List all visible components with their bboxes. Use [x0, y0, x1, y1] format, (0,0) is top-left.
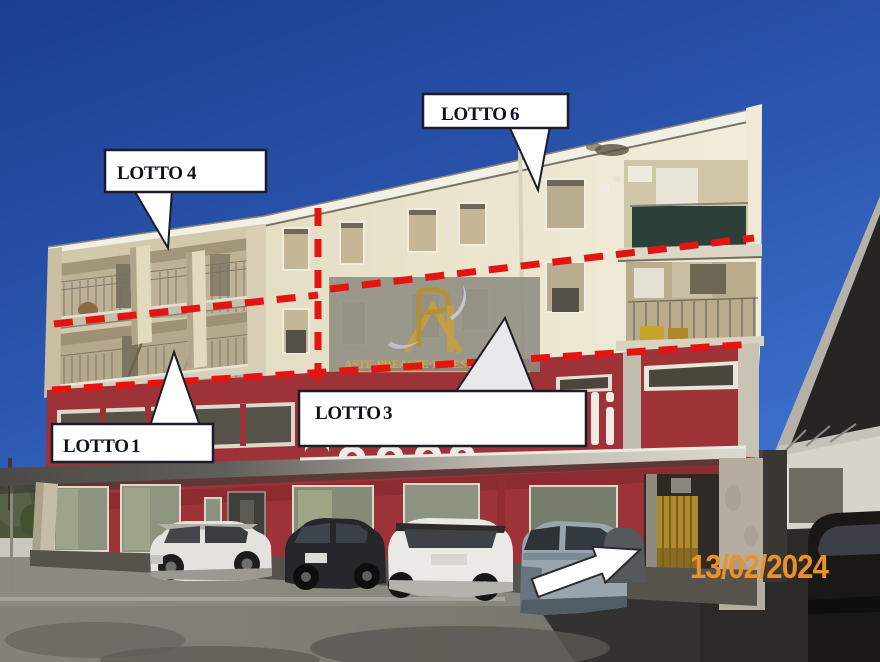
svg-text:13/02/2024: 13/02/2024 — [690, 548, 829, 585]
svg-text:LOTTO: LOTTO — [63, 436, 129, 457]
svg-text:LOTTO: LOTTO — [441, 104, 507, 125]
svg-text:1: 1 — [131, 436, 140, 457]
svg-text:6: 6 — [510, 104, 519, 125]
svg-text:LOTTO: LOTTO — [315, 403, 381, 424]
svg-text:3: 3 — [383, 403, 392, 424]
svg-text:LOTTO: LOTTO — [117, 163, 183, 184]
svg-text:4: 4 — [187, 163, 197, 184]
